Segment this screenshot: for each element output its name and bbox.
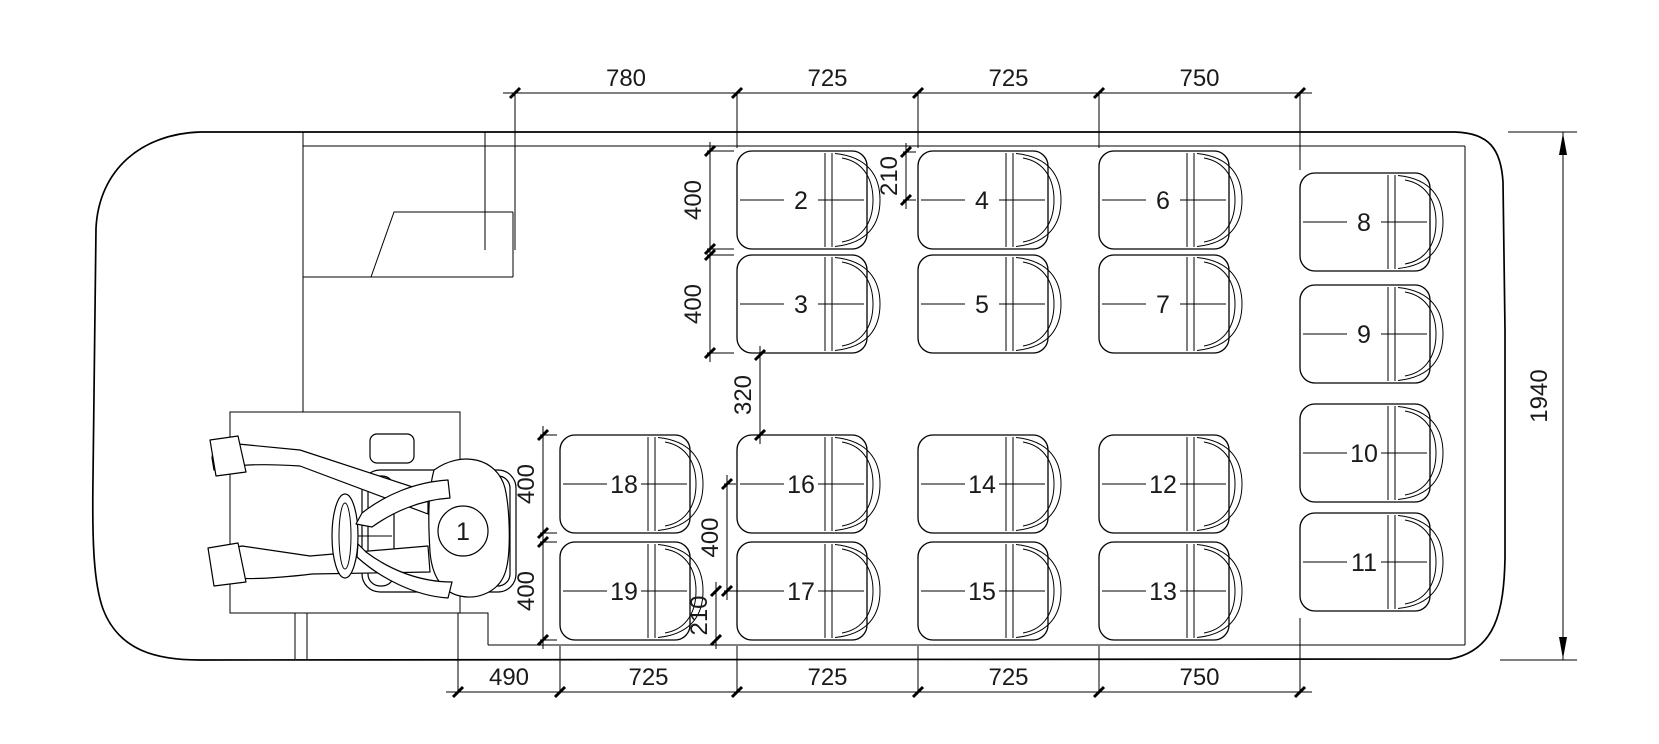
seat-number: 18	[610, 471, 638, 499]
dim-value: 210	[686, 595, 713, 635]
seat-9: 9	[1300, 285, 1443, 383]
dim-value: 750	[1179, 664, 1219, 691]
dim-seat17-setback: 210	[686, 582, 721, 649]
seat-number: 6	[1156, 187, 1170, 215]
dim-overall-width: 1940	[1500, 132, 1577, 660]
front-console	[303, 212, 513, 277]
seat-number: 7	[1156, 291, 1170, 319]
arrow-up	[1559, 133, 1567, 155]
seat-number: 2	[794, 187, 808, 215]
dim-seat2-depth: 400	[680, 142, 734, 258]
passenger-seats: 2345678910111819161714151213	[560, 151, 1443, 640]
seat-13: 13	[1099, 542, 1242, 640]
dim-value: 400	[513, 571, 540, 611]
seating-plan-svg: 1 2345678910111819161714151213 780725725…	[0, 0, 1659, 744]
dim-seat18-depth: 400	[513, 426, 557, 542]
driver-headrest	[370, 434, 414, 463]
seat-19: 19	[560, 542, 703, 640]
dim-value: 400	[680, 284, 707, 324]
seat-number: 4	[975, 187, 989, 215]
seat-8: 8	[1300, 173, 1443, 271]
dim-value: 725	[807, 65, 847, 92]
seat-number: 5	[975, 291, 989, 319]
dim-value: 750	[1179, 65, 1219, 92]
bus-seating-diagram: 1 2345678910111819161714151213 780725725…	[0, 0, 1659, 744]
seat-12: 12	[1099, 435, 1242, 533]
seat-number: 13	[1149, 578, 1177, 606]
seat-number: 10	[1350, 440, 1378, 468]
dim-value: 490	[489, 664, 529, 691]
dim-value: 210	[876, 156, 903, 196]
seat-3: 3	[737, 255, 880, 353]
dim-chain-bottom: 490725725725750	[446, 614, 1312, 697]
arrow-down	[1559, 637, 1567, 659]
dim-value: 400	[697, 517, 724, 557]
dim-seat19-depth: 400	[513, 533, 557, 649]
dim-seat3-depth: 400	[680, 246, 734, 362]
dim-value: 725	[628, 664, 668, 691]
seat-number: 19	[610, 578, 638, 606]
seat-14: 14	[918, 435, 1061, 533]
dim-value: 780	[606, 65, 646, 92]
dim-seat4-setback: 210	[876, 143, 916, 209]
seat-number: 16	[787, 471, 815, 499]
seat-number: 12	[1149, 471, 1177, 499]
seat-10: 10	[1300, 404, 1443, 502]
dim-chain-top: 780725725750	[503, 65, 1312, 250]
seat-number: 9	[1357, 321, 1371, 349]
seat-15: 15	[918, 542, 1061, 640]
dim-value: 725	[988, 65, 1028, 92]
dim-value: 320	[730, 375, 757, 415]
seat-number: 11	[1351, 549, 1377, 577]
driver-foot-upper	[210, 436, 246, 476]
dim-value: 1940	[1526, 369, 1553, 422]
dim-value: 725	[988, 664, 1028, 691]
steering-wheel	[332, 494, 358, 578]
seat-6: 6	[1099, 151, 1242, 249]
dim-value: 725	[807, 664, 847, 691]
seat-11: 11	[1300, 513, 1443, 611]
seat-7: 7	[1099, 255, 1242, 353]
dim-row-gap: 320	[730, 346, 765, 444]
dim-seat16-17-pitch: 400	[697, 475, 758, 600]
seat-number: 8	[1357, 209, 1371, 237]
driver-seat-number: 1	[456, 518, 470, 546]
driver-figure: 1	[208, 434, 516, 598]
seat-number: 3	[794, 291, 808, 319]
seat-16: 16	[737, 435, 880, 533]
seat-number: 15	[968, 578, 996, 606]
seat-4: 4	[918, 151, 1061, 249]
seat-number: 17	[787, 578, 815, 606]
entry-step	[458, 613, 488, 660]
dim-value: 400	[680, 180, 707, 220]
seat-17: 17	[737, 542, 880, 640]
seat-5: 5	[918, 255, 1061, 353]
dim-value: 400	[513, 464, 540, 504]
seat-2: 2	[737, 151, 880, 249]
seat-number: 14	[968, 471, 996, 499]
seat-18: 18	[560, 435, 703, 533]
